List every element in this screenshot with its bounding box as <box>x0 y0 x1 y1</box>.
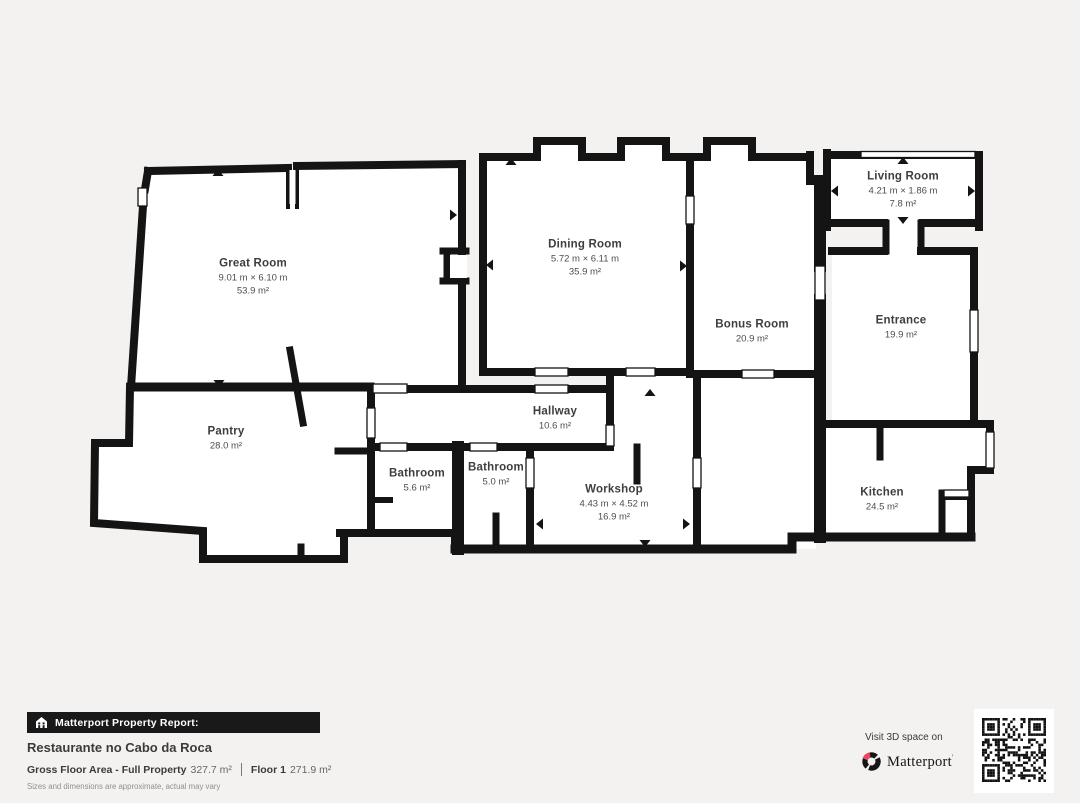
gross-floor-area-value: 327.7 m² <box>190 764 231 776</box>
floor-label: Floor 1 <box>251 764 286 776</box>
window <box>686 196 694 224</box>
matterport-logo-icon <box>861 751 882 772</box>
matterport-brand: Matterport' <box>861 751 954 772</box>
door-opening <box>626 368 655 376</box>
floor-value: 271.9 m² <box>290 764 331 776</box>
disclaimer-text: Sizes and dimensions are approximate, ac… <box>27 782 220 791</box>
stat-divider <box>241 763 242 776</box>
property-name: Restaurante no Cabo da Roca <box>27 740 212 755</box>
report-header-bar: Matterport Property Report: <box>27 712 320 733</box>
door-opening <box>535 368 568 376</box>
window <box>815 266 825 300</box>
qr-code <box>982 718 1046 782</box>
door-opening <box>373 384 407 393</box>
visit-3d-text: Visit 3D space on <box>865 732 943 743</box>
house-icon <box>35 716 48 729</box>
window <box>138 188 147 206</box>
property-report-page: Great Room 9.01 m × 6.10 m 53.9 m² Dinin… <box>0 0 1080 803</box>
door-opening <box>742 370 774 378</box>
qr-code-card <box>974 709 1054 793</box>
window <box>526 458 534 488</box>
gross-floor-area-label: Gross Floor Area - Full Property <box>27 764 186 776</box>
floor-area-stats: Gross Floor Area - Full Property 327.7 m… <box>27 763 331 776</box>
trademark-mark: ' <box>952 753 954 762</box>
floor-plan <box>0 0 1080 803</box>
door-opening <box>470 443 497 451</box>
window <box>693 458 701 488</box>
window <box>970 310 978 352</box>
report-label: Matterport Property Report: <box>55 717 199 729</box>
window <box>944 490 969 497</box>
door-opening <box>367 408 375 438</box>
window <box>861 152 975 158</box>
door-opening <box>535 385 568 393</box>
room-floors <box>94 141 990 559</box>
matterport-wordmark: Matterport' <box>887 753 954 771</box>
door-opening <box>380 443 407 451</box>
window <box>986 432 994 468</box>
door-opening <box>606 425 614 446</box>
